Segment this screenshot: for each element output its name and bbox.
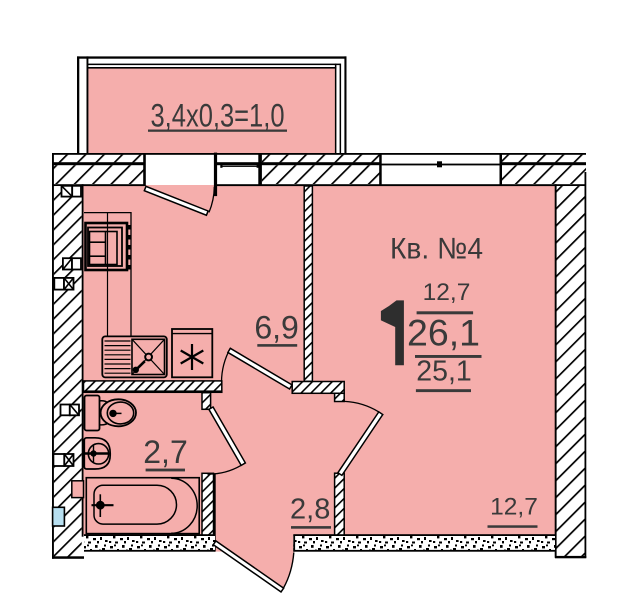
svg-text:12,7: 12,7 <box>423 279 471 306</box>
svg-text:3,4x0,3=1,0: 3,4x0,3=1,0 <box>151 98 285 134</box>
svg-text:12,7: 12,7 <box>490 494 538 521</box>
svg-text:26,1: 26,1 <box>407 312 480 354</box>
svg-text:2,7: 2,7 <box>143 434 187 470</box>
svg-text:25,1: 25,1 <box>416 356 471 388</box>
svg-text:2,8: 2,8 <box>290 494 330 526</box>
svg-text:6,9: 6,9 <box>254 310 298 346</box>
svg-text:Кв. №4: Кв. №4 <box>390 233 483 266</box>
